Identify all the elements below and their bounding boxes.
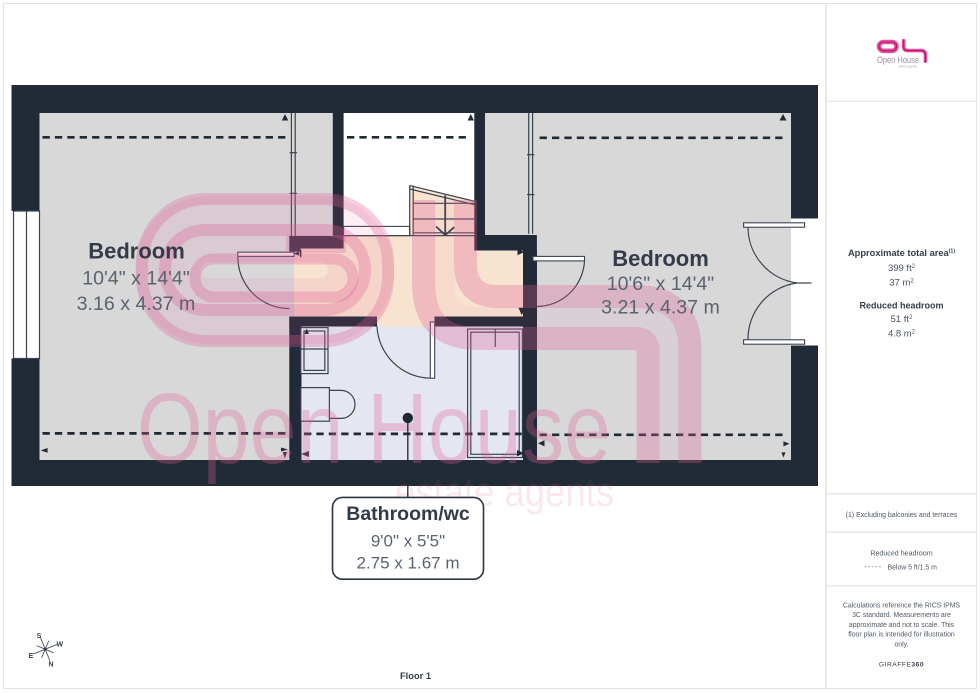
svg-text:Bedroom: Bedroom (612, 246, 709, 271)
svg-text:Floor 1: Floor 1 (400, 671, 431, 681)
svg-text:3.16 x 4.37 m: 3.16 x 4.37 m (77, 293, 196, 315)
svg-text:Calculations reference the RIC: Calculations reference the RICS IPMS (843, 603, 961, 610)
svg-text:E: E (29, 653, 34, 660)
svg-text:3C standard. Measurements are: 3C standard. Measurements are (852, 612, 951, 619)
svg-text:Open House: Open House (877, 55, 919, 65)
svg-text:4.8 m2: 4.8 m2 (888, 329, 916, 340)
svg-text:Bedroom: Bedroom (88, 239, 185, 264)
svg-text:399 ft2: 399 ft2 (888, 263, 916, 274)
svg-text:only.: only. (894, 641, 908, 648)
svg-text:2.75 x 1.67 m: 2.75 x 1.67 m (356, 554, 459, 573)
svg-text:9'0" x 5'5": 9'0" x 5'5" (371, 532, 445, 551)
svg-text:(1) Excluding balconies and te: (1) Excluding balconies and terraces (846, 512, 958, 519)
svg-text:Reduced headroom: Reduced headroom (859, 301, 943, 311)
svg-text:10'6" x 14'4": 10'6" x 14'4" (607, 273, 715, 295)
svg-text:floor plan is intended for ill: floor plan is intended for illustration (848, 632, 955, 639)
svg-text:3.21 x 4.37 m: 3.21 x 4.37 m (601, 297, 720, 319)
svg-text:Approximate total area(1): Approximate total area(1) (848, 248, 955, 258)
svg-text:Bathroom/wc: Bathroom/wc (346, 503, 470, 525)
svg-text:GIRAFFE360: GIRAFFE360 (879, 662, 924, 669)
svg-text:estate agents: estate agents (898, 65, 917, 69)
svg-text:Reduced headroom: Reduced headroom (870, 550, 932, 558)
svg-text:Below 5 ft/1.5 m: Below 5 ft/1.5 m (888, 565, 938, 572)
svg-text:W: W (56, 642, 63, 649)
svg-text:10'4" x 14'4": 10'4" x 14'4" (82, 268, 190, 290)
svg-text:N: N (48, 662, 53, 669)
svg-text:approximate and not to scale.: approximate and not to scale. This (849, 622, 955, 629)
svg-text:S: S (37, 633, 42, 640)
